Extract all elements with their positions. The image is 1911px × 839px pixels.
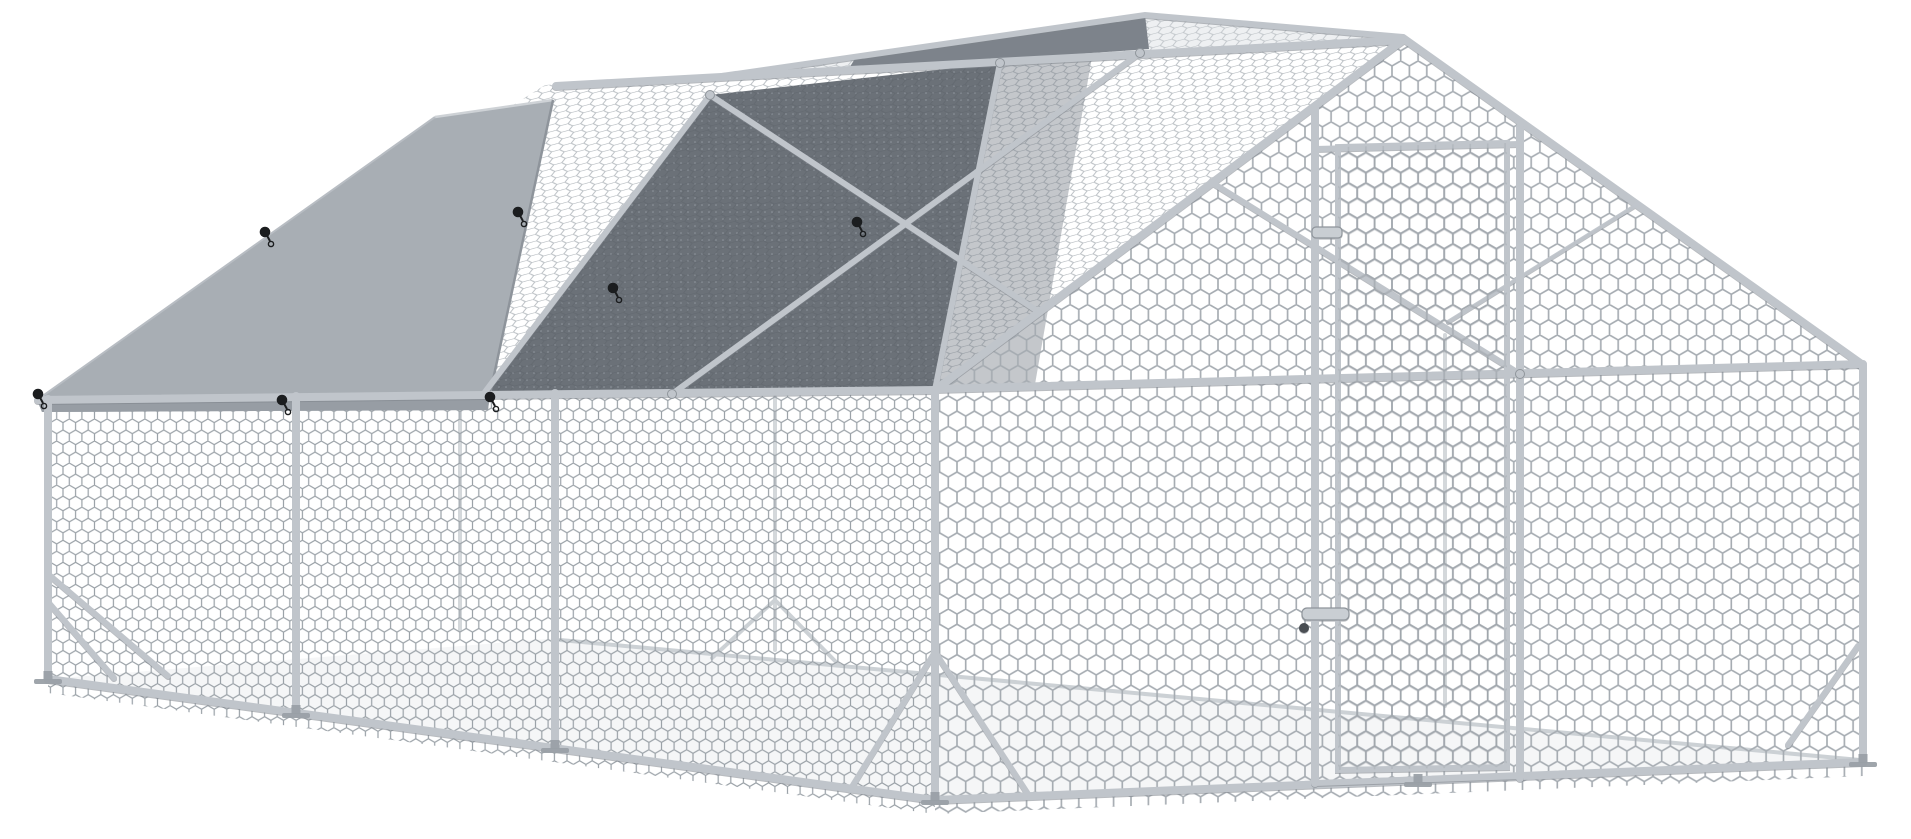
door-latch-knob [1299,623,1309,633]
tarp-cover [37,100,553,412]
left-wall-mesh [48,390,935,814]
door-latch [1302,608,1349,620]
tube-clamp [1136,49,1145,58]
tube-clamp [668,390,677,399]
tube-clamp [706,91,715,100]
tube-clamp [1516,370,1525,379]
door-hinge [1312,227,1342,238]
product-photo-chicken-run [0,0,1911,839]
chicken-run-illustration [0,0,1911,839]
tube-clamp [996,59,1005,68]
door-mesh [1338,143,1507,770]
